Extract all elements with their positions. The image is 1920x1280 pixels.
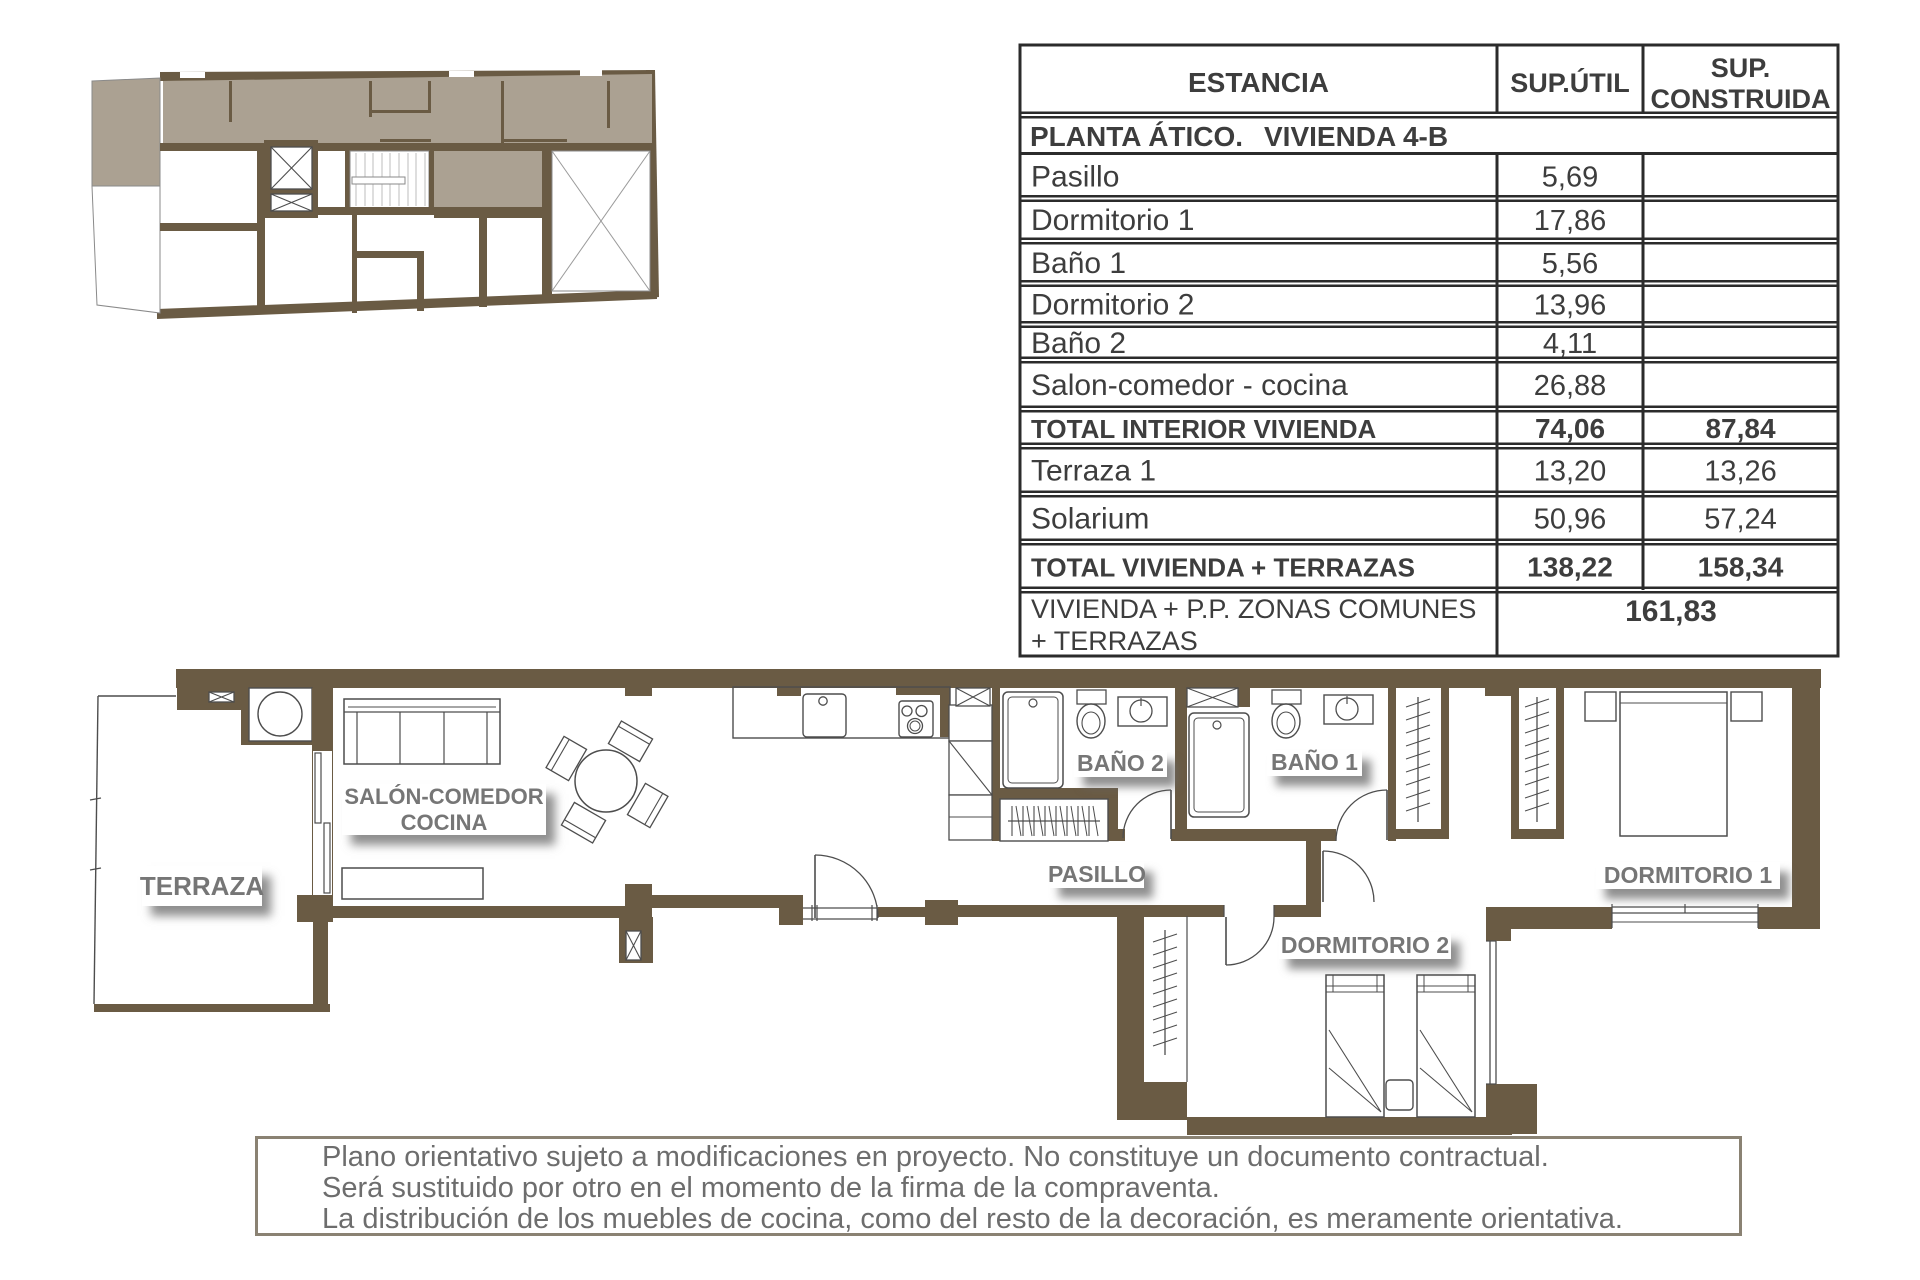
svg-text:158,34: 158,34 [1698,552,1784,583]
svg-text:161,83: 161,83 [1625,595,1717,628]
svg-text:26,88: 26,88 [1534,370,1607,402]
svg-text:SUP.ÚTIL: SUP.ÚTIL [1510,67,1630,98]
svg-text:CONSTRUIDA: CONSTRUIDA [1651,84,1831,114]
svg-text:VIVIENDA + P.P. ZONAS COMUNES: VIVIENDA + P.P. ZONAS COMUNES [1031,594,1476,624]
svg-text:57,24: 57,24 [1704,504,1777,536]
svg-text:TOTAL INTERIOR VIVIENDA: TOTAL INTERIOR VIVIENDA [1031,414,1376,444]
svg-text:87,84: 87,84 [1705,413,1775,444]
svg-text:+ TERRAZAS: + TERRAZAS [1031,626,1198,656]
svg-text:Pasillo: Pasillo [1031,160,1119,193]
svg-text:5,69: 5,69 [1542,161,1598,193]
svg-text:Solarium: Solarium [1031,503,1149,536]
svg-text:13,20: 13,20 [1534,456,1607,488]
svg-text:Salon-comedor - cocina: Salon-comedor - cocina [1031,369,1348,402]
svg-text:138,22: 138,22 [1527,552,1613,583]
svg-text:4,11: 4,11 [1543,328,1597,360]
svg-text:5,56: 5,56 [1542,248,1598,280]
svg-text:50,96: 50,96 [1534,504,1607,536]
svg-text:Baño 1: Baño 1 [1031,247,1126,280]
svg-text:13,26: 13,26 [1704,456,1777,488]
svg-text:PLANTA ÁTICO.: PLANTA ÁTICO. [1030,121,1243,152]
svg-text:13,96: 13,96 [1534,290,1607,322]
svg-text:74,06: 74,06 [1535,413,1605,444]
svg-text:VIVIENDA 4-B: VIVIENDA 4-B [1264,121,1448,152]
svg-text:Dormitorio 2: Dormitorio 2 [1031,289,1194,322]
svg-text:Dormitorio 1: Dormitorio 1 [1031,204,1194,237]
svg-text:ESTANCIA: ESTANCIA [1188,67,1329,98]
svg-text:17,86: 17,86 [1534,205,1607,237]
svg-text:SUP.: SUP. [1711,53,1771,83]
svg-text:Terraza 1: Terraza 1 [1031,455,1156,488]
svg-text:TOTAL VIVIENDA + TERRAZAS: TOTAL VIVIENDA + TERRAZAS [1031,553,1415,583]
svg-text:Baño 2: Baño 2 [1031,327,1126,360]
